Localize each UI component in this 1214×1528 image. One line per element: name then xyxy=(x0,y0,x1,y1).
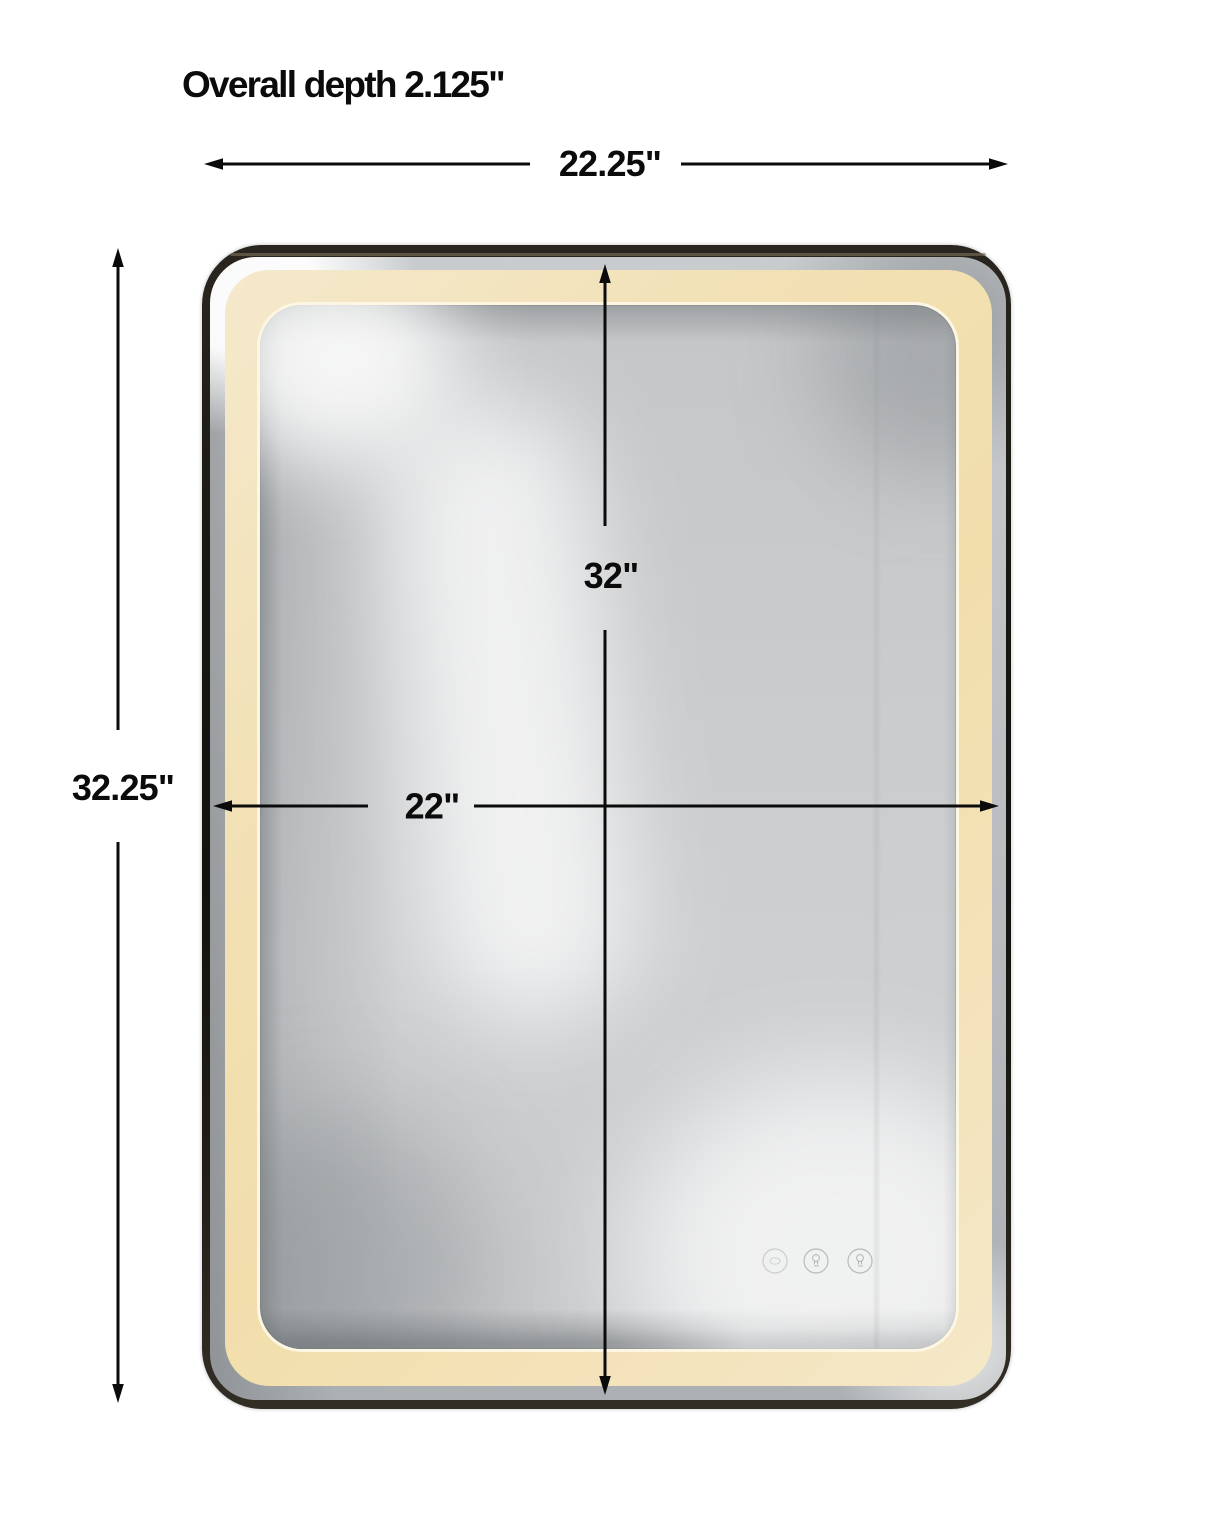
svg-text:22": 22" xyxy=(405,786,460,827)
svg-text:32.25": 32.25" xyxy=(72,767,174,808)
svg-text:32": 32" xyxy=(584,555,639,596)
svg-text:22.25": 22.25" xyxy=(559,143,661,184)
svg-text:Overall depth 2.125": Overall depth 2.125" xyxy=(182,64,504,105)
